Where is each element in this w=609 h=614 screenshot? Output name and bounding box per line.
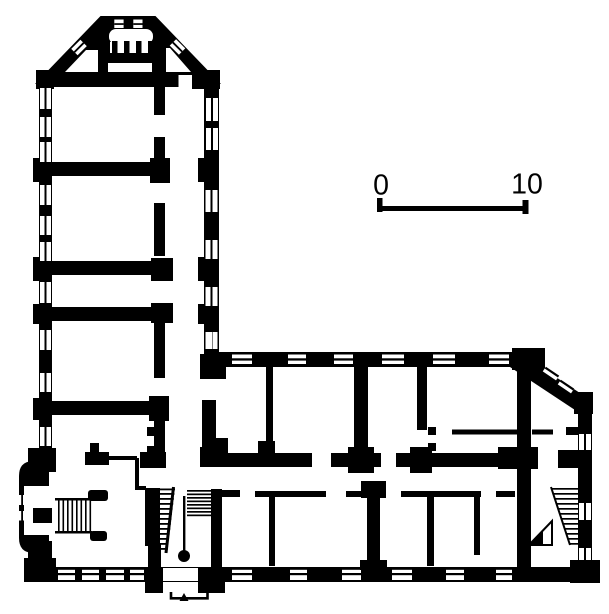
svg-text:0: 0 <box>373 170 389 202</box>
svg-text:10: 10 <box>511 169 543 201</box>
